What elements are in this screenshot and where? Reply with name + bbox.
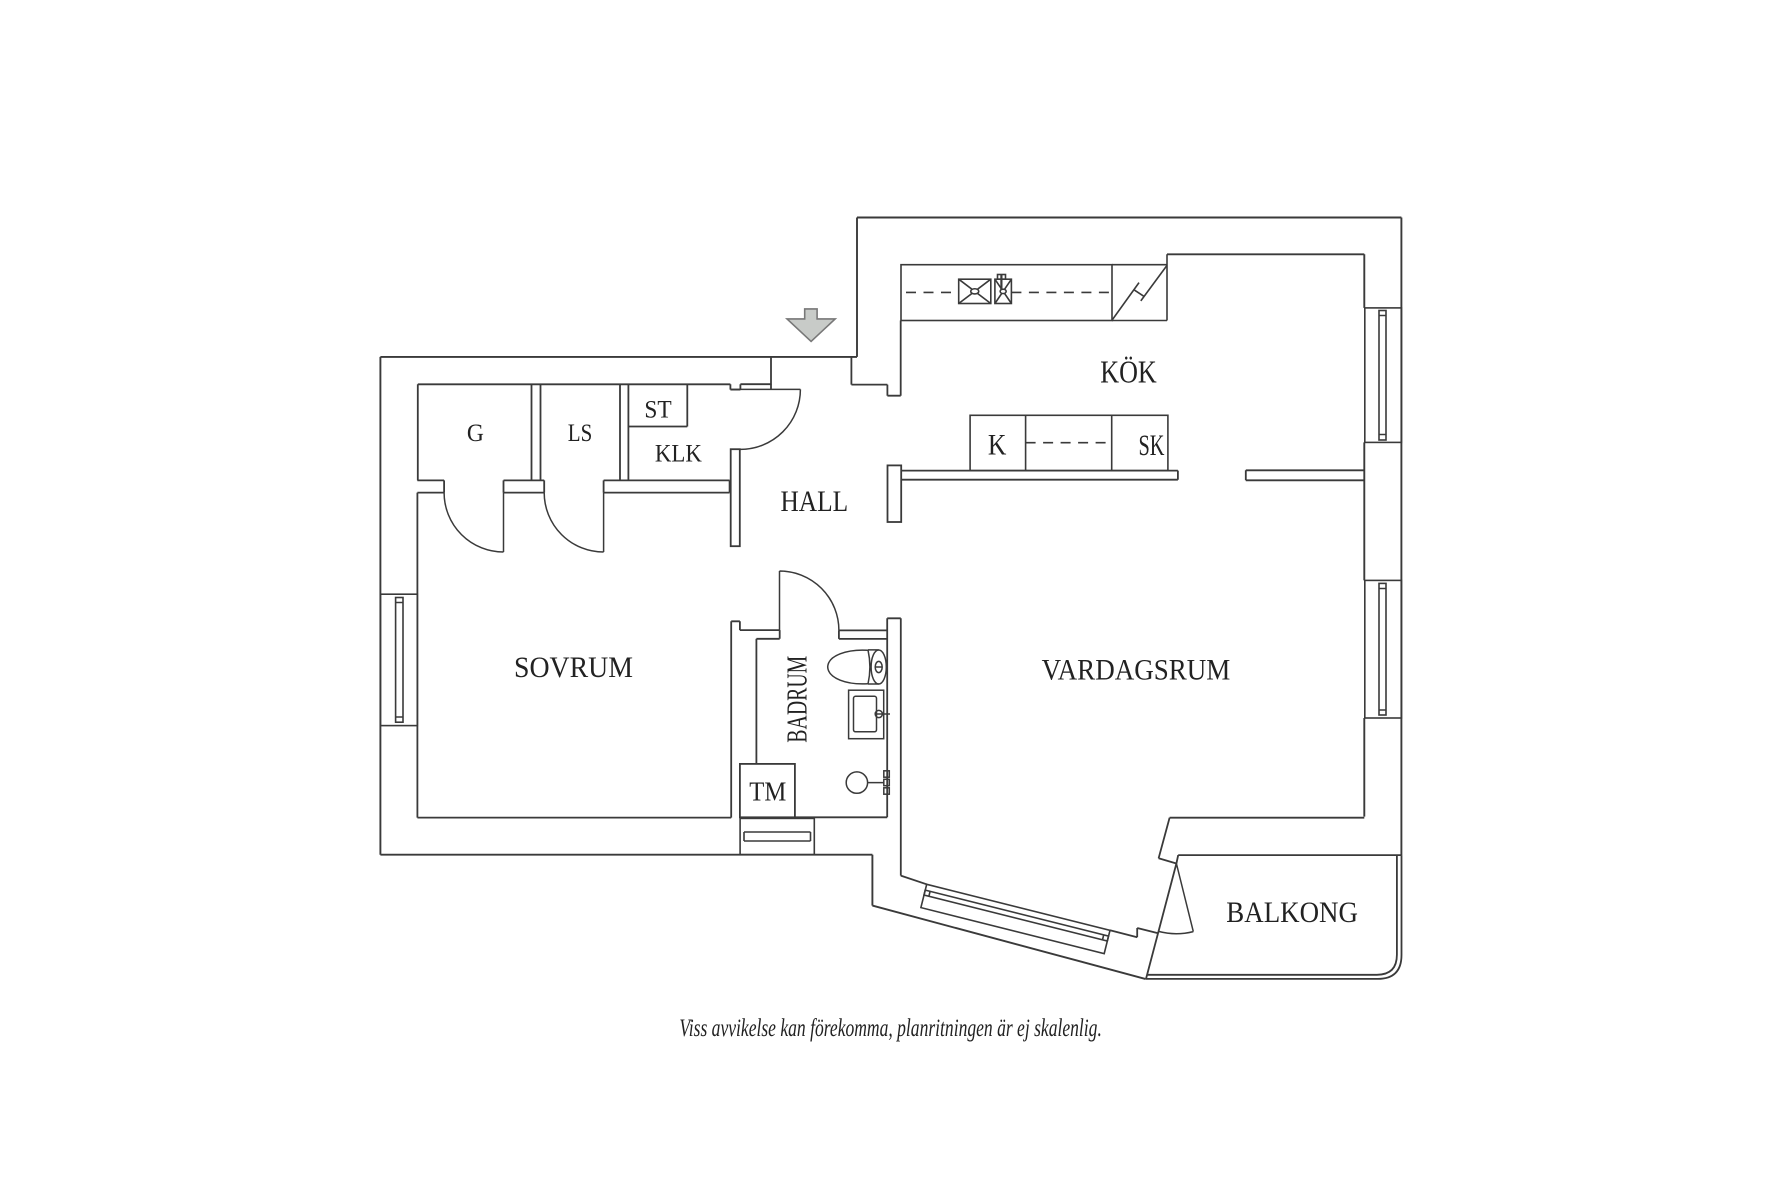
svg-text:SK: SK	[1139, 429, 1165, 462]
svg-text:K: K	[988, 429, 1007, 462]
svg-text:KLK: KLK	[655, 440, 702, 467]
svg-text:HALL: HALL	[780, 485, 848, 518]
svg-text:SOVRUM: SOVRUM	[514, 652, 633, 684]
svg-text:G: G	[467, 420, 484, 447]
svg-text:Viss avvikelse kan förekomma,: Viss avvikelse kan förekomma, planritnin…	[679, 1013, 1102, 1042]
svg-text:ST: ST	[644, 396, 671, 423]
svg-text:VARDAGSRUM: VARDAGSRUM	[1042, 655, 1231, 687]
svg-text:LS: LS	[568, 420, 593, 447]
svg-text:KÖK: KÖK	[1100, 354, 1157, 390]
svg-text:BALKONG: BALKONG	[1226, 897, 1358, 929]
svg-text:BADRUM: BADRUM	[782, 656, 814, 743]
svg-text:TM: TM	[749, 777, 786, 807]
